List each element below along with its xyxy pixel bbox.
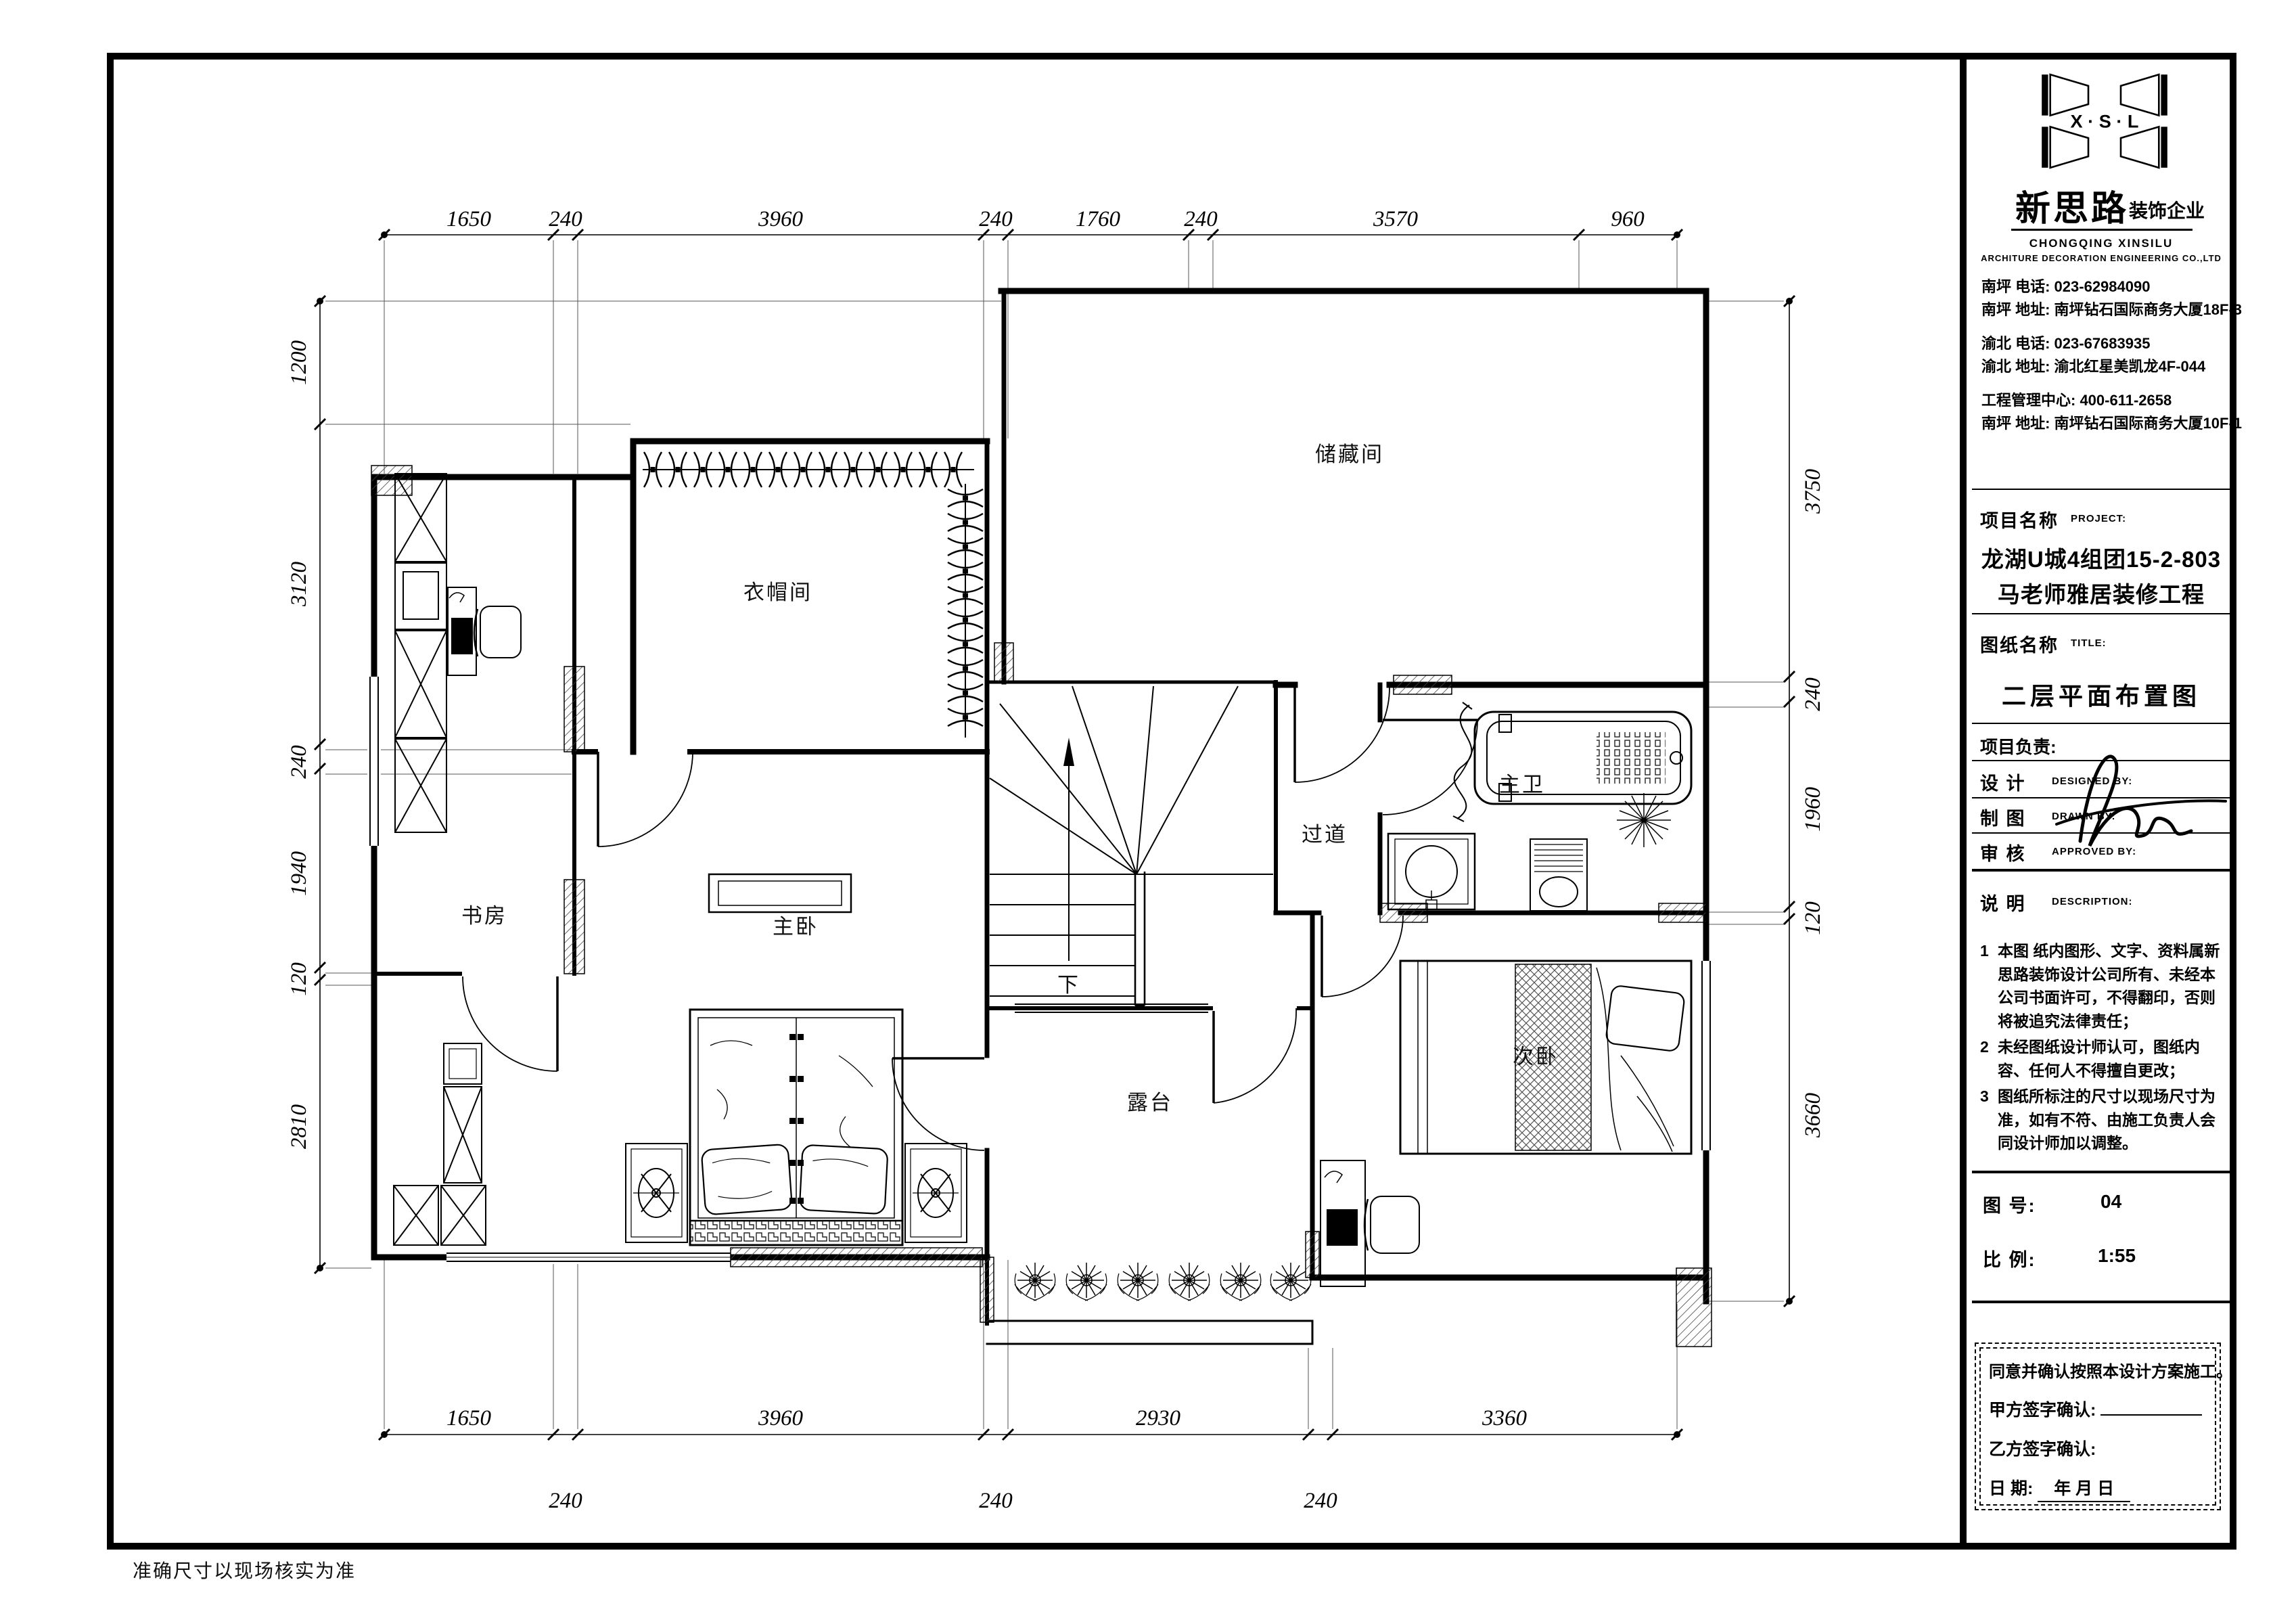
contact-row: 渝北 电话: 023-67683935 <box>1981 332 2150 353</box>
note-number: 2 <box>1980 1035 1998 1082</box>
divider <box>1972 613 2230 614</box>
party-a-signature-line <box>2100 1398 2202 1416</box>
note-text: 图纸所标注的尺寸以现场尺寸为准，如有不符、由施工负责人会同设计师加以调整。 <box>1998 1085 2225 1155</box>
drawn-by-cn: 制 图 <box>1980 804 2026 830</box>
contact-row: 渝北 地址: 渝北红星美凯龙4F-044 <box>1981 355 2205 376</box>
project-name-line1: 龙湖U城4组团15-2-803 <box>1972 541 2230 574</box>
company-en-2: ARCHITURE DECORATION ENGINEERING CO.,LTD <box>1972 253 2230 263</box>
note-item: 1 本图 纸内图形、文字、资料属新思路装饰设计公司所有、未经本公司书面许可，不得… <box>1980 939 2225 1033</box>
note-text: 未经图纸设计师认可，图纸内容、任何人不得擅自更改； <box>1998 1035 2225 1082</box>
divider <box>1972 489 2230 490</box>
note-item: 2 未经图纸设计师认可，图纸内容、任何人不得擅自更改； <box>1980 1035 2225 1082</box>
date-label: 日 期: <box>1989 1479 2033 1498</box>
description-label-en: DESCRIPTION: <box>2052 896 2133 907</box>
divider <box>1972 723 2230 724</box>
sheet-title-label: 图纸名称 <box>1980 631 2059 657</box>
designed-by-cn: 设 计 <box>1980 769 2026 795</box>
company-name-cn: 新思路 <box>2015 180 2129 231</box>
title-block: X · S · L 新思路 装饰企业 CHONGQING XINSILU ARC… <box>1972 60 2230 1543</box>
contact-row: 工程管理中心: 400-611-2658 <box>1981 388 2172 410</box>
contact-row: 南坪 地址: 南坪钻石国际商务大厦18F-3 <box>1981 298 2242 319</box>
agreement-box-inner: 同意并确认按照本设计方案施工。 甲方签字确认: 乙方签字确认: 日 期: 年 月… <box>1979 1347 2216 1506</box>
contact-row: 南坪 地址: 南坪钻石国际商务大厦10F-1 <box>1981 411 2242 433</box>
note-number: 1 <box>1980 939 1998 1033</box>
divider <box>1972 869 2230 872</box>
scale-value: 1:55 <box>2098 1245 2136 1267</box>
description-notes: 1 本图 纸内图形、文字、资料属新思路装饰设计公司所有、未经本公司书面许可，不得… <box>1980 939 2225 1158</box>
party-a-label: 甲方签字确认: <box>1989 1401 2096 1420</box>
company-en-1: CHONGQING XINSILU <box>1972 237 2230 250</box>
sheet-title-label-en: TITLE: <box>2071 637 2107 649</box>
company-suffix: 装饰企业 <box>2129 196 2205 223</box>
note-number: 3 <box>1980 1085 1998 1155</box>
fig-no-label: 图 号: <box>1983 1191 2036 1217</box>
agreement-statement: 同意并确认按照本设计方案施工。 <box>1989 1358 2207 1382</box>
titleblock-divider <box>1960 53 1967 1550</box>
project-label-en: PROJECT: <box>2071 513 2126 524</box>
party-b-label: 乙方签字确认: <box>1989 1436 2207 1460</box>
approved-by-cn: 审 核 <box>1980 839 2026 865</box>
agreement-box: 同意并确认按照本设计方案施工。 甲方签字确认: 乙方签字确认: 日 期: 年 月… <box>1975 1343 2221 1510</box>
divider <box>1972 1301 2230 1303</box>
contact-row: 南坪 电话: 023-62984090 <box>1981 275 2150 296</box>
date-fill-line: 年 月 日 <box>2038 1475 2130 1502</box>
scale-label: 比 例: <box>1983 1245 2036 1271</box>
xsl-logo-icon: X · S · L <box>2037 72 2172 171</box>
note-text: 本图 纸内图形、文字、资料属新思路装饰设计公司所有、未经本公司书面许可，不得翻印… <box>1998 939 2225 1033</box>
sheet-title: 二层平面布置图 <box>1972 677 2230 712</box>
fig-no-value: 04 <box>2100 1191 2121 1213</box>
description-label: 说 明 <box>1980 889 2026 916</box>
logo-underline <box>2011 229 2192 231</box>
project-label: 项目名称 <box>1980 506 2059 533</box>
drawing-sheet: 1650 240 3960 240 1760 240 3570 960 1200… <box>0 0 2296 1601</box>
sheet-border <box>107 53 2236 1550</box>
sheet-footnote: 准确尺寸以现场核实为准 <box>133 1556 356 1583</box>
divider <box>1972 1171 2230 1173</box>
pm-label: 项目负责: <box>1980 734 2057 759</box>
handwritten-signature <box>2053 729 2229 858</box>
svg-text:X · S · L: X · S · L <box>2071 110 2139 131</box>
note-item: 3 图纸所标注的尺寸以现场尺寸为准，如有不符、由施工负责人会同设计师加以调整。 <box>1980 1085 2225 1155</box>
project-name-line2: 马老师雅居装修工程 <box>1972 577 2230 609</box>
